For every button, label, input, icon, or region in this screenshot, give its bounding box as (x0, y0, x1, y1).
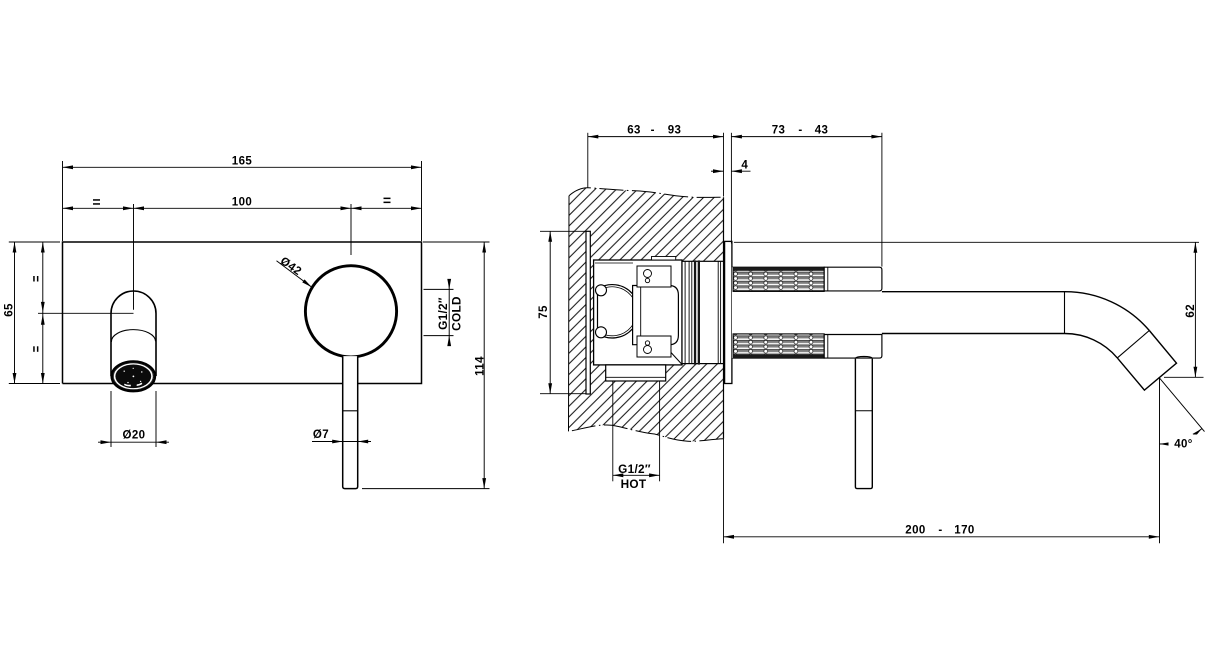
svg-text:40°: 40° (1174, 439, 1193, 451)
svg-text:165: 165 (232, 155, 253, 167)
svg-text:200: 200 (905, 525, 925, 537)
svg-text:-: - (938, 525, 942, 537)
svg-text:Ø20: Ø20 (123, 430, 146, 442)
svg-text:4: 4 (741, 159, 748, 171)
svg-text:-: - (798, 124, 802, 136)
svg-text:170: 170 (954, 525, 974, 537)
svg-text:73: 73 (772, 124, 786, 136)
svg-text:65: 65 (3, 303, 15, 317)
svg-text:COLD: COLD (450, 296, 464, 331)
svg-text:100: 100 (232, 196, 252, 208)
svg-text:63: 63 (627, 124, 641, 136)
svg-text:43: 43 (815, 124, 829, 136)
svg-text:75: 75 (538, 305, 550, 319)
svg-text:G1/2″: G1/2″ (618, 462, 651, 476)
svg-text:62: 62 (1185, 304, 1197, 318)
svg-text:Ø7: Ø7 (313, 429, 329, 441)
svg-text:93: 93 (668, 124, 682, 136)
svg-text:G1/2″: G1/2″ (436, 297, 450, 330)
svg-text:HOT: HOT (621, 477, 647, 491)
svg-text:-: - (651, 124, 655, 136)
svg-text:114: 114 (475, 356, 487, 376)
